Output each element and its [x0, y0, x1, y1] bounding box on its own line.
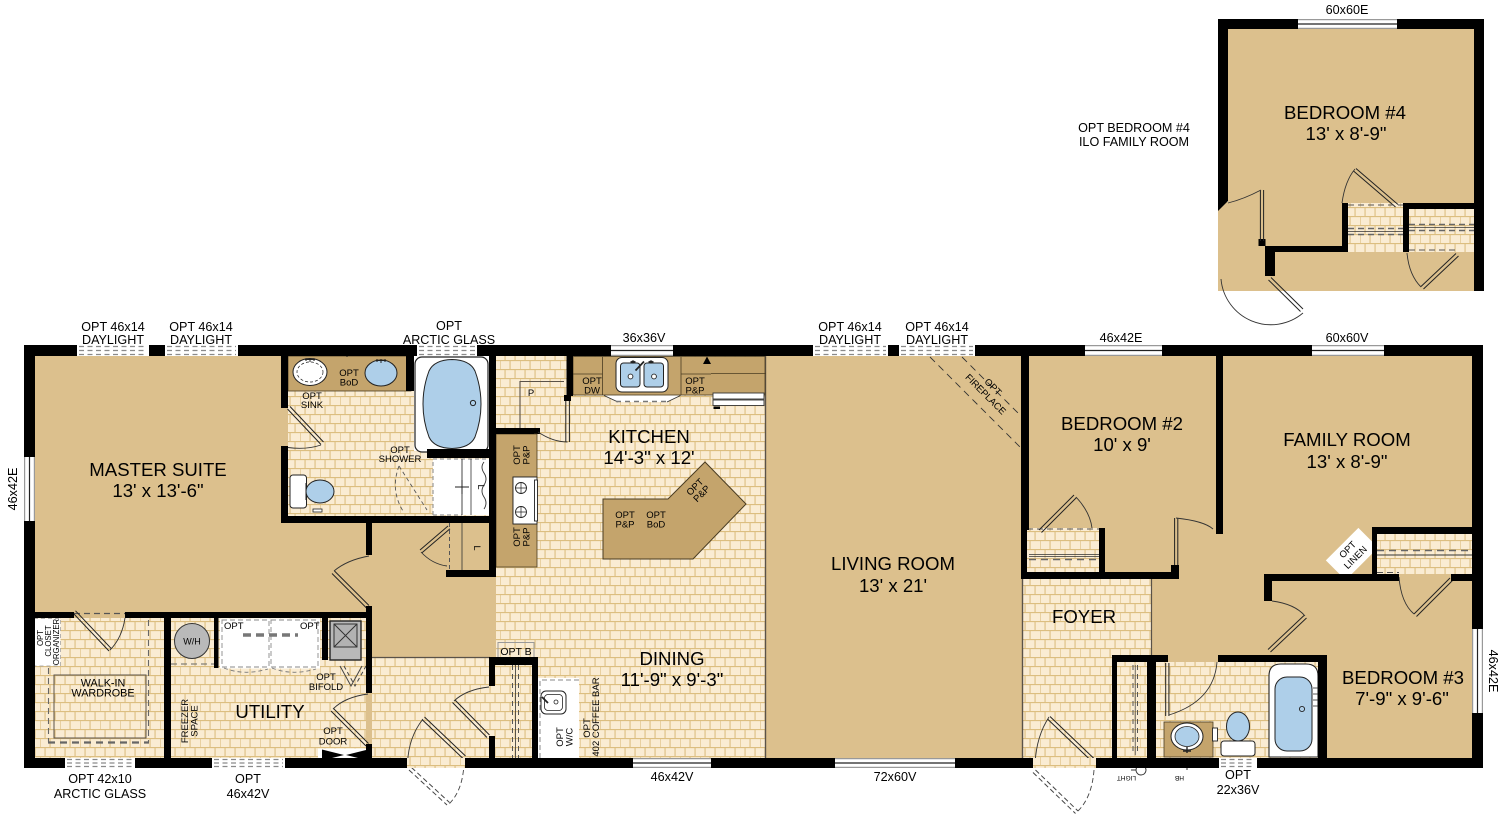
- svg-text:OPT 46x14: OPT 46x14: [818, 320, 881, 334]
- svg-text:OPT: OPT: [1225, 768, 1251, 782]
- svg-text:FAMILY ROOM: FAMILY ROOM: [1283, 429, 1410, 450]
- svg-text:SINK: SINK: [301, 400, 324, 411]
- svg-text:60x60V: 60x60V: [1326, 331, 1369, 345]
- svg-text:46x42E: 46x42E: [1486, 650, 1500, 693]
- svg-text:HB: HB: [1175, 774, 1184, 781]
- svg-text:DW: DW: [584, 386, 600, 397]
- svg-text:OPT BEDROOM #4: OPT BEDROOM #4: [1078, 121, 1190, 135]
- svg-text:22x36V: 22x36V: [1217, 783, 1260, 797]
- svg-text:DAYLIGHT: DAYLIGHT: [170, 333, 232, 347]
- svg-text:OPT: OPT: [300, 621, 320, 632]
- svg-text:36x36V: 36x36V: [623, 331, 666, 345]
- svg-text:OPT B: OPT B: [500, 646, 531, 658]
- svg-text:BIFOLD: BIFOLD: [309, 682, 343, 693]
- svg-text:7'-9" x 9'-6": 7'-9" x 9'-6": [1355, 688, 1449, 709]
- svg-text:W/H: W/H: [183, 637, 201, 647]
- svg-text:72x60V: 72x60V: [874, 770, 917, 784]
- svg-text:SHOWER: SHOWER: [379, 454, 422, 465]
- svg-text:DAYLIGHT: DAYLIGHT: [906, 333, 968, 347]
- svg-text:P&P: P&P: [522, 527, 533, 546]
- svg-text:BoD: BoD: [340, 378, 359, 389]
- svg-text:OPT: OPT: [323, 726, 343, 737]
- svg-text:UTILITY: UTILITY: [235, 701, 304, 722]
- svg-text:ARCTIC GLASS: ARCTIC GLASS: [54, 787, 146, 801]
- svg-text:LIGHT: LIGHT: [1117, 774, 1136, 781]
- svg-text:OPT 46x14: OPT 46x14: [81, 320, 144, 334]
- svg-text:DAYLIGHT: DAYLIGHT: [82, 333, 144, 347]
- svg-text:DAYLIGHT: DAYLIGHT: [819, 333, 881, 347]
- svg-text:LIVING ROOM: LIVING ROOM: [831, 553, 955, 574]
- svg-text:P&P: P&P: [522, 445, 533, 464]
- svg-text:ARCTIC GLASS: ARCTIC GLASS: [403, 333, 495, 347]
- svg-text:BEDROOM #2: BEDROOM #2: [1061, 413, 1183, 434]
- svg-text:OPT: OPT: [436, 319, 462, 333]
- svg-text:P: P: [528, 388, 534, 399]
- svg-text:OPT: OPT: [224, 621, 244, 632]
- svg-text:46x42E: 46x42E: [6, 468, 20, 511]
- svg-text:DOOR: DOOR: [319, 737, 348, 748]
- svg-text:46x42V: 46x42V: [227, 787, 270, 801]
- svg-text:10' x 9': 10' x 9': [1093, 434, 1151, 455]
- svg-text:BoD: BoD: [647, 520, 666, 531]
- svg-text:W/C: W/C: [565, 728, 576, 747]
- svg-text:MASTER SUITE: MASTER SUITE: [89, 459, 226, 480]
- svg-text:46x42E: 46x42E: [1100, 331, 1143, 345]
- svg-text:SPACE: SPACE: [190, 705, 201, 737]
- svg-text:ILO FAMILY ROOM: ILO FAMILY ROOM: [1079, 135, 1189, 149]
- svg-text:BEDROOM #3: BEDROOM #3: [1342, 667, 1464, 688]
- svg-text:11'-9" x 9'-3": 11'-9" x 9'-3": [621, 669, 724, 690]
- svg-text:L: L: [476, 484, 486, 489]
- svg-text:L: L: [472, 545, 482, 550]
- svg-text:13' x 8'-9": 13' x 8'-9": [1306, 123, 1387, 144]
- svg-text:14'-3" x 12': 14'-3" x 12': [603, 447, 694, 468]
- svg-text:OPT 46x14: OPT 46x14: [169, 320, 232, 334]
- svg-text:WARDROBE: WARDROBE: [71, 688, 134, 700]
- svg-text:BEDROOM #4: BEDROOM #4: [1284, 102, 1406, 123]
- svg-text:OPT: OPT: [235, 772, 261, 786]
- svg-text:OPT 42x10: OPT 42x10: [68, 772, 131, 786]
- svg-text:ORGANIZER: ORGANIZER: [52, 618, 61, 665]
- svg-text:OPT 46x14: OPT 46x14: [905, 320, 968, 334]
- svg-text:60x60E: 60x60E: [1326, 3, 1369, 17]
- svg-text:13' x 13'-6": 13' x 13'-6": [112, 480, 203, 501]
- svg-text:P&P: P&P: [685, 386, 704, 397]
- svg-text:46x42V: 46x42V: [651, 770, 694, 784]
- svg-text:DINING: DINING: [639, 648, 704, 669]
- svg-text:P&P: P&P: [615, 520, 634, 531]
- svg-text:FOYER: FOYER: [1052, 606, 1116, 627]
- svg-text:KITCHEN: KITCHEN: [608, 426, 690, 447]
- svg-text:402 COFFEE BAR: 402 COFFEE BAR: [591, 677, 602, 756]
- svg-text:13' x 21': 13' x 21': [859, 575, 927, 596]
- svg-text:13' x 8'-9": 13' x 8'-9": [1307, 451, 1388, 472]
